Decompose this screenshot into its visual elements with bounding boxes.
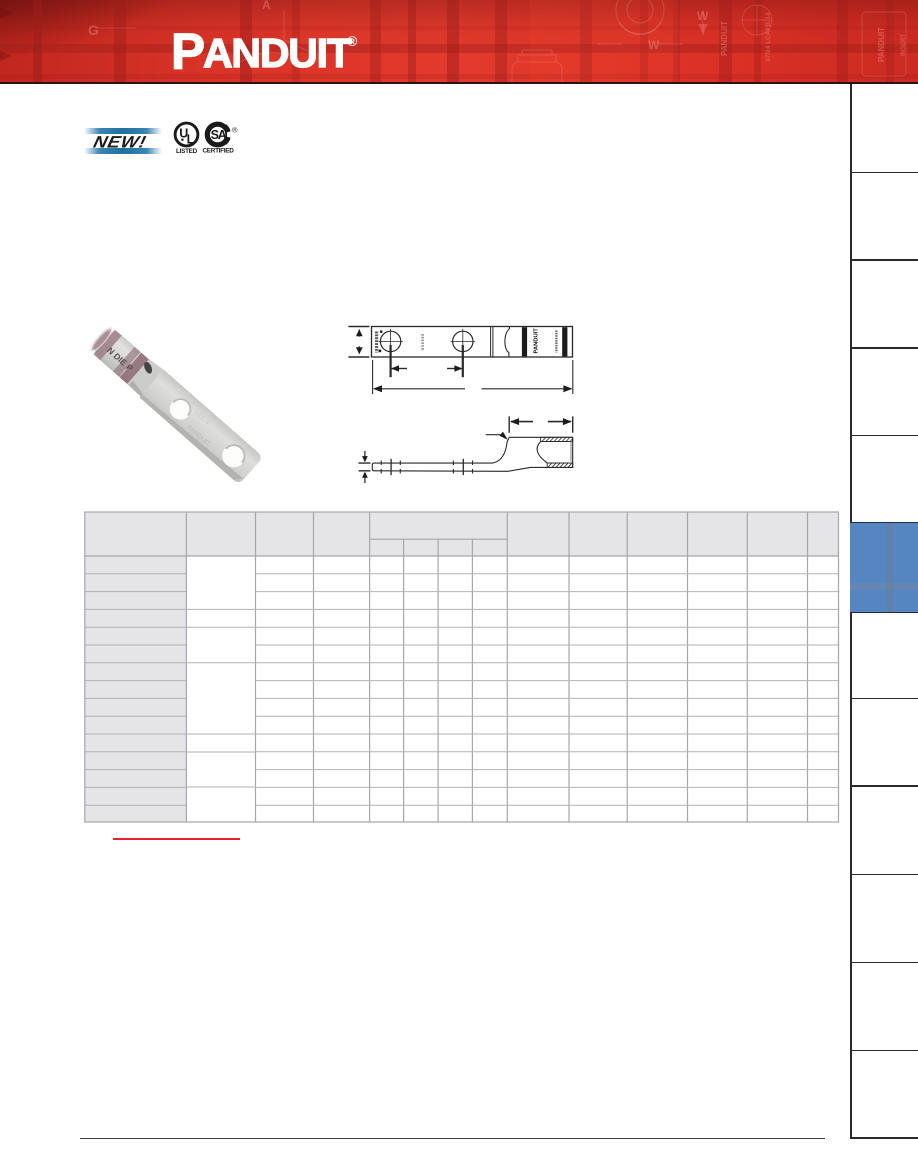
svg-text:G: G: [88, 22, 99, 38]
svg-text:A: A: [262, 0, 271, 12]
svg-text:SA: SA: [211, 128, 227, 142]
svg-text:LISTED: LISTED: [176, 148, 198, 154]
svg-text:PANDUIT: PANDUIT: [720, 21, 729, 56]
svg-text:W: W: [697, 9, 709, 23]
svg-text:PANDUIT: PANDUIT: [534, 328, 540, 354]
svg-text:W: W: [648, 38, 660, 52]
svg-text:37/24 LCAFB-14: 37/24 LCAFB-14: [765, 12, 772, 62]
svg-text:L: L: [187, 133, 195, 147]
svg-text:PANDUIT: PANDUIT: [877, 27, 886, 62]
svg-text:INSERT: INSERT: [901, 34, 907, 56]
svg-text:®: ®: [232, 126, 238, 135]
svg-text:NEW!: NEW!: [92, 133, 149, 152]
svg-text:CERTIFIED: CERTIFIED: [202, 148, 234, 155]
